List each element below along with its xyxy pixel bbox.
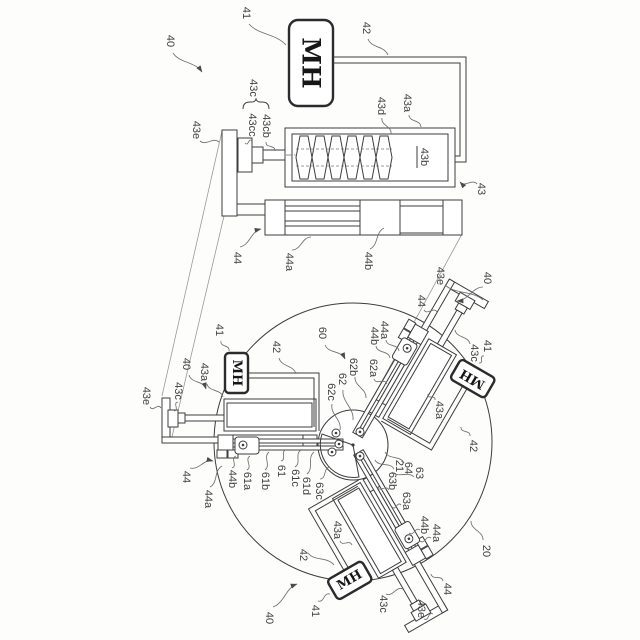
ref-label-61: 61 bbox=[275, 465, 287, 477]
rail-assembly-44-detail bbox=[265, 200, 462, 235]
ref-label-41: 41 bbox=[481, 340, 493, 352]
ref-label-63: 63 bbox=[413, 467, 425, 479]
leader-line-41 bbox=[318, 594, 330, 601]
ref-label-42: 42 bbox=[297, 549, 309, 561]
leader-line-61d bbox=[307, 452, 314, 474]
ref-label-43a: 43a bbox=[331, 521, 343, 540]
ref-label-41: 41 bbox=[213, 324, 225, 336]
leader-line-42 bbox=[461, 427, 470, 436]
ref-label-44b: 44b bbox=[418, 516, 430, 534]
ref-label-43cc: 43cc bbox=[246, 113, 258, 137]
ref-label-62: 62 bbox=[336, 373, 348, 385]
ref-label-44b: 44b bbox=[362, 252, 374, 270]
end-bracket-43e-detail bbox=[222, 130, 237, 216]
shaft-rod bbox=[185, 415, 224, 421]
ref-label-43b: 43b bbox=[418, 148, 430, 166]
slider-block-44b-detail bbox=[360, 200, 400, 235]
ref-label-43e: 43e bbox=[190, 121, 202, 139]
ref-label-43c: 43c bbox=[247, 79, 259, 97]
leader-line-61 bbox=[281, 450, 286, 461]
leader-line-43 bbox=[460, 182, 477, 184]
leader-line-44 bbox=[190, 461, 213, 469]
ref-label-61a: 61a bbox=[241, 472, 253, 491]
ref-label-43e: 43e bbox=[434, 267, 446, 285]
ref-label-62a: 62a bbox=[367, 359, 379, 378]
leader-line-43a bbox=[340, 541, 352, 545]
shaft-flange-43c bbox=[168, 410, 178, 427]
leader-line-43c bbox=[455, 330, 470, 344]
ref-label-43c: 43c bbox=[172, 382, 184, 400]
ref-label-43e: 43e bbox=[415, 600, 427, 618]
ref-label-40: 40 bbox=[180, 358, 192, 370]
leader-line-61c bbox=[295, 450, 301, 467]
leader-line-40 bbox=[173, 53, 202, 72]
ref-label-44b: 44b bbox=[226, 470, 238, 488]
ref-label-61b: 61b bbox=[259, 472, 271, 490]
ref-label-44: 44 bbox=[180, 471, 192, 483]
ref-label-43d: 43d bbox=[375, 97, 387, 115]
ref-label-44b: 44b bbox=[368, 327, 380, 345]
ref-label-40: 40 bbox=[481, 272, 493, 284]
leader-line-42 bbox=[279, 358, 296, 374]
ref-label-44: 44 bbox=[231, 252, 243, 264]
ref-label-44: 44 bbox=[441, 583, 453, 595]
ref-label-44a: 44a bbox=[202, 490, 214, 509]
ref-label-44: 44 bbox=[415, 295, 427, 307]
ref-label-61d: 61d bbox=[300, 477, 312, 495]
ref-label-43: 43 bbox=[475, 183, 487, 195]
ref-label-40: 40 bbox=[263, 612, 275, 624]
ref-label-63c: 63c bbox=[313, 482, 325, 500]
ref-label-42: 42 bbox=[270, 341, 282, 353]
leader-line-60 bbox=[325, 345, 345, 359]
leader-line-43a bbox=[409, 115, 421, 127]
leader-line-43c bbox=[386, 588, 403, 594]
leader-line-42 bbox=[368, 39, 388, 55]
leader-line-43e bbox=[150, 406, 161, 408]
leader-line-44a bbox=[292, 237, 311, 250]
leader-line-20 bbox=[471, 521, 483, 540]
leader-line-43a bbox=[207, 384, 223, 397]
ref-label-42: 42 bbox=[467, 440, 479, 452]
ref-label-40: 40 bbox=[164, 35, 176, 47]
leader-line-61b bbox=[265, 452, 269, 470]
ref-label-43c: 43c bbox=[377, 595, 389, 613]
leader-line-44 bbox=[240, 229, 261, 247]
leader-line-41 bbox=[249, 24, 286, 45]
leader-line-44 bbox=[431, 574, 443, 581]
leader-line-41 bbox=[221, 341, 229, 351]
slider-block-44b bbox=[217, 450, 227, 458]
shaft-step bbox=[178, 413, 185, 423]
ref-label-43a: 43a bbox=[198, 363, 210, 382]
actuator-unit-lower bbox=[279, 446, 460, 640]
ref-label-44a: 44a bbox=[283, 253, 295, 272]
ref-label-63a: 63a bbox=[400, 492, 412, 511]
brace-43c bbox=[243, 99, 269, 109]
leader-line-42 bbox=[308, 553, 334, 565]
ref-label-43cb: 43cb bbox=[260, 114, 272, 138]
ref-label-43a: 43a bbox=[401, 94, 413, 113]
ref-label-43e: 43e bbox=[140, 387, 152, 405]
shaft-step-43cb-detail bbox=[252, 147, 263, 163]
ref-label-43c: 43c bbox=[468, 344, 480, 362]
patent-figure-page: MH MH bbox=[0, 0, 640, 640]
leader-line-61a bbox=[247, 456, 250, 470]
ref-label-44a: 44a bbox=[430, 524, 442, 543]
ref-label-41: 41 bbox=[240, 7, 252, 19]
patent-figure-svg: MH MH bbox=[0, 0, 640, 640]
housing-43a bbox=[224, 399, 316, 431]
ref-label-64: 64 bbox=[402, 462, 414, 474]
ref-label-61c: 61c bbox=[289, 469, 301, 487]
ref-label-41: 41 bbox=[309, 605, 321, 617]
ref-label-43a: 43a bbox=[433, 401, 445, 420]
ref-label-42: 42 bbox=[360, 22, 372, 34]
arm-61-upper bbox=[259, 439, 343, 443]
ref-label-62c: 62c bbox=[325, 383, 337, 401]
ref-label-62b: 62b bbox=[347, 358, 359, 376]
shaft-rod-detail bbox=[263, 150, 285, 160]
ref-label-20: 20 bbox=[480, 545, 492, 557]
leader-line-40 bbox=[273, 584, 297, 607]
leader-line-43e bbox=[200, 140, 219, 142]
mh-canister-label-detail: MH bbox=[297, 37, 326, 88]
mh-canister-label: MH bbox=[229, 360, 244, 387]
ref-label-60: 60 bbox=[316, 327, 328, 339]
leader-line-44b bbox=[376, 346, 390, 358]
leader-line-62b bbox=[355, 377, 366, 398]
